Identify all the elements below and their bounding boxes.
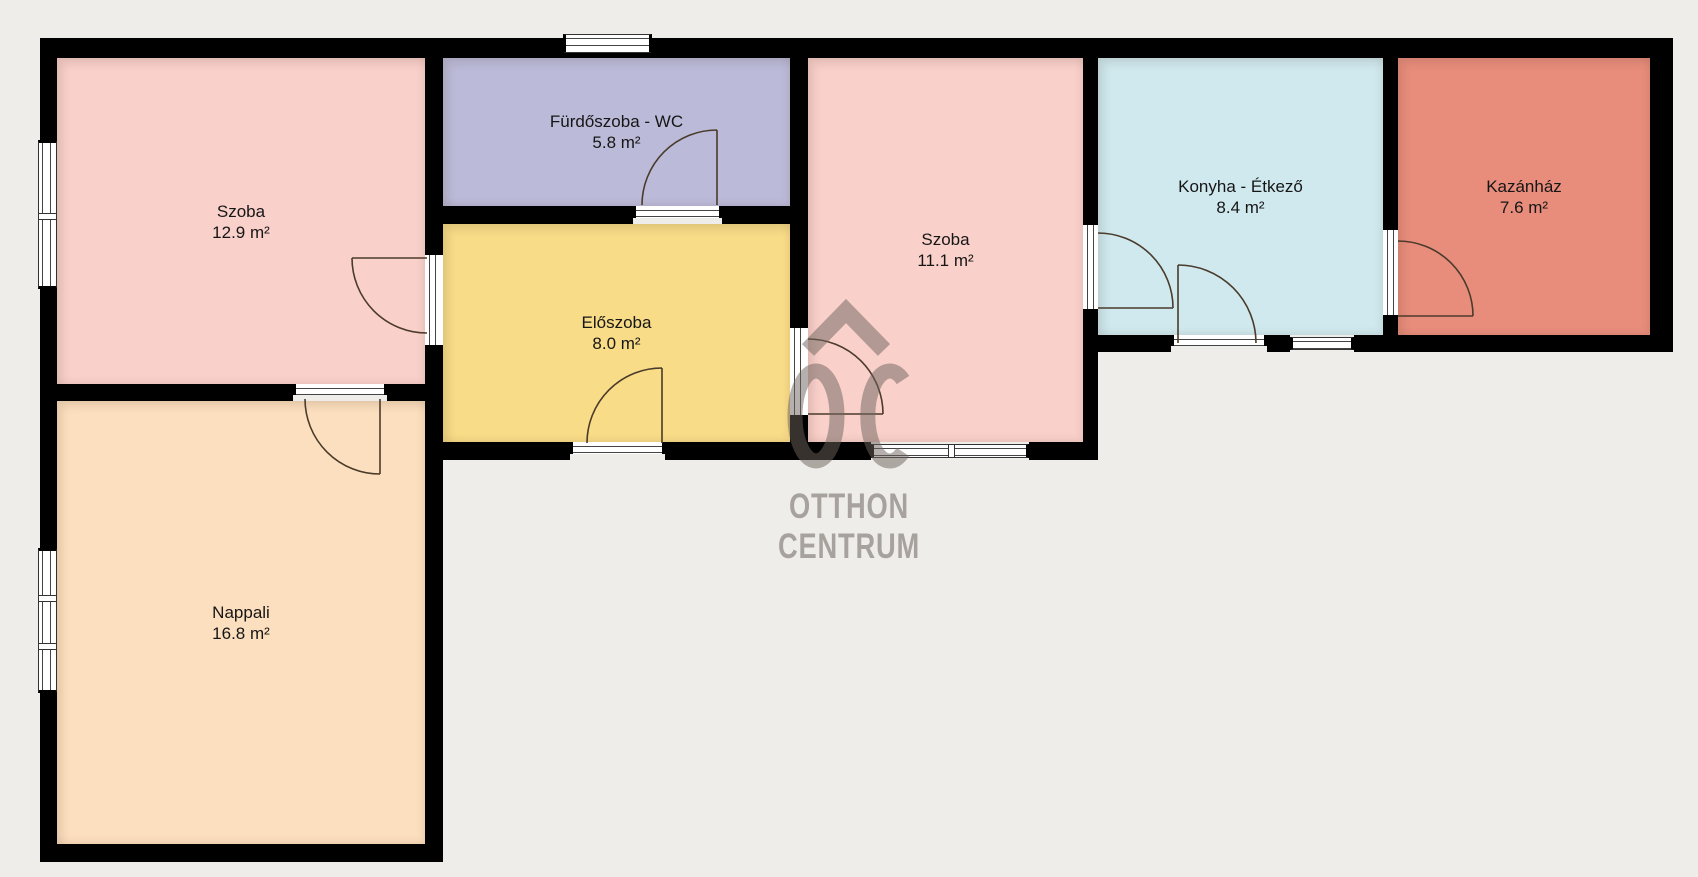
room-label: Szoba 12.9 m² — [212, 201, 270, 243]
door-opening — [570, 442, 665, 454]
room-area: 8.0 m² — [582, 333, 652, 354]
wall-segment — [665, 442, 871, 460]
window-symbol — [38, 140, 57, 289]
door-opening — [633, 206, 722, 218]
door-opening — [293, 384, 387, 395]
wall-segment — [790, 418, 808, 460]
wall-segment — [790, 58, 808, 325]
room-eloszoba: Előszoba 8.0 m² — [443, 224, 790, 442]
room-label: Konyha - Étkező 8.4 m² — [1178, 176, 1303, 218]
wall-segment — [1383, 318, 1398, 352]
floor-plan: Szoba 12.9 m² Fürdőszoba - WC 5.8 m² Elő… — [0, 0, 1698, 877]
door-opening — [425, 252, 443, 348]
wall-segment — [40, 384, 293, 401]
window-symbol — [563, 34, 652, 53]
room-name: Kazánház — [1486, 176, 1562, 197]
wall-segment — [40, 38, 1673, 58]
wall-segment — [1083, 58, 1098, 222]
wall-segment — [40, 844, 443, 862]
window-symbol — [1290, 337, 1354, 350]
room-szoba-1: Szoba 12.9 m² — [57, 58, 425, 385]
floorplan-canvas: Szoba 12.9 m² Fürdőszoba - WC 5.8 m² Elő… — [0, 0, 1698, 877]
wall-segment — [425, 206, 633, 224]
wall-segment — [1650, 38, 1673, 352]
room-label: Előszoba 8.0 m² — [582, 312, 652, 354]
room-name: Konyha - Étkező — [1178, 176, 1303, 197]
room-area: 12.9 m² — [212, 222, 270, 243]
door-opening — [790, 325, 808, 418]
room-name: Szoba — [212, 201, 270, 222]
room-furdoszoba: Fürdőszoba - WC 5.8 m² — [443, 58, 790, 206]
room-label: Fürdőszoba - WC 5.8 m² — [550, 111, 683, 153]
wall-segment — [387, 384, 443, 401]
room-name: Nappali — [212, 602, 270, 623]
room-area: 16.8 m² — [212, 623, 270, 644]
room-name: Fürdőszoba - WC — [550, 111, 683, 132]
door-opening — [1383, 227, 1398, 318]
room-area: 5.8 m² — [550, 132, 683, 153]
room-nappali: Nappali 16.8 m² — [57, 401, 425, 844]
room-name: Szoba — [917, 229, 973, 250]
door-opening — [1171, 335, 1267, 346]
room-area: 11.1 m² — [917, 250, 973, 271]
room-name: Előszoba — [582, 312, 652, 333]
room-area: 7.6 m² — [1486, 197, 1562, 218]
wall-segment — [425, 348, 443, 862]
window-symbol — [871, 444, 1029, 458]
room-label: Szoba 11.1 m² — [917, 229, 973, 271]
wall-segment — [1383, 58, 1398, 227]
watermark-line2: CENTRUM — [778, 527, 920, 567]
room-konyha: Konyha - Étkező 8.4 m² — [1098, 58, 1383, 335]
wall-segment — [1083, 335, 1171, 352]
room-label: Kazánház 7.6 m² — [1486, 176, 1562, 218]
room-szoba-2: Szoba 11.1 m² — [808, 58, 1083, 442]
window-symbol — [38, 548, 57, 693]
watermark-line1: OTTHON — [789, 487, 909, 527]
wall-segment — [425, 442, 570, 460]
wall-segment — [1267, 335, 1290, 352]
room-area: 8.4 m² — [1178, 197, 1303, 218]
room-label: Nappali 16.8 m² — [212, 602, 270, 644]
door-opening — [1083, 222, 1098, 312]
wall-segment — [1354, 335, 1673, 352]
room-kazanhaz: Kazánház 7.6 m² — [1398, 58, 1650, 335]
